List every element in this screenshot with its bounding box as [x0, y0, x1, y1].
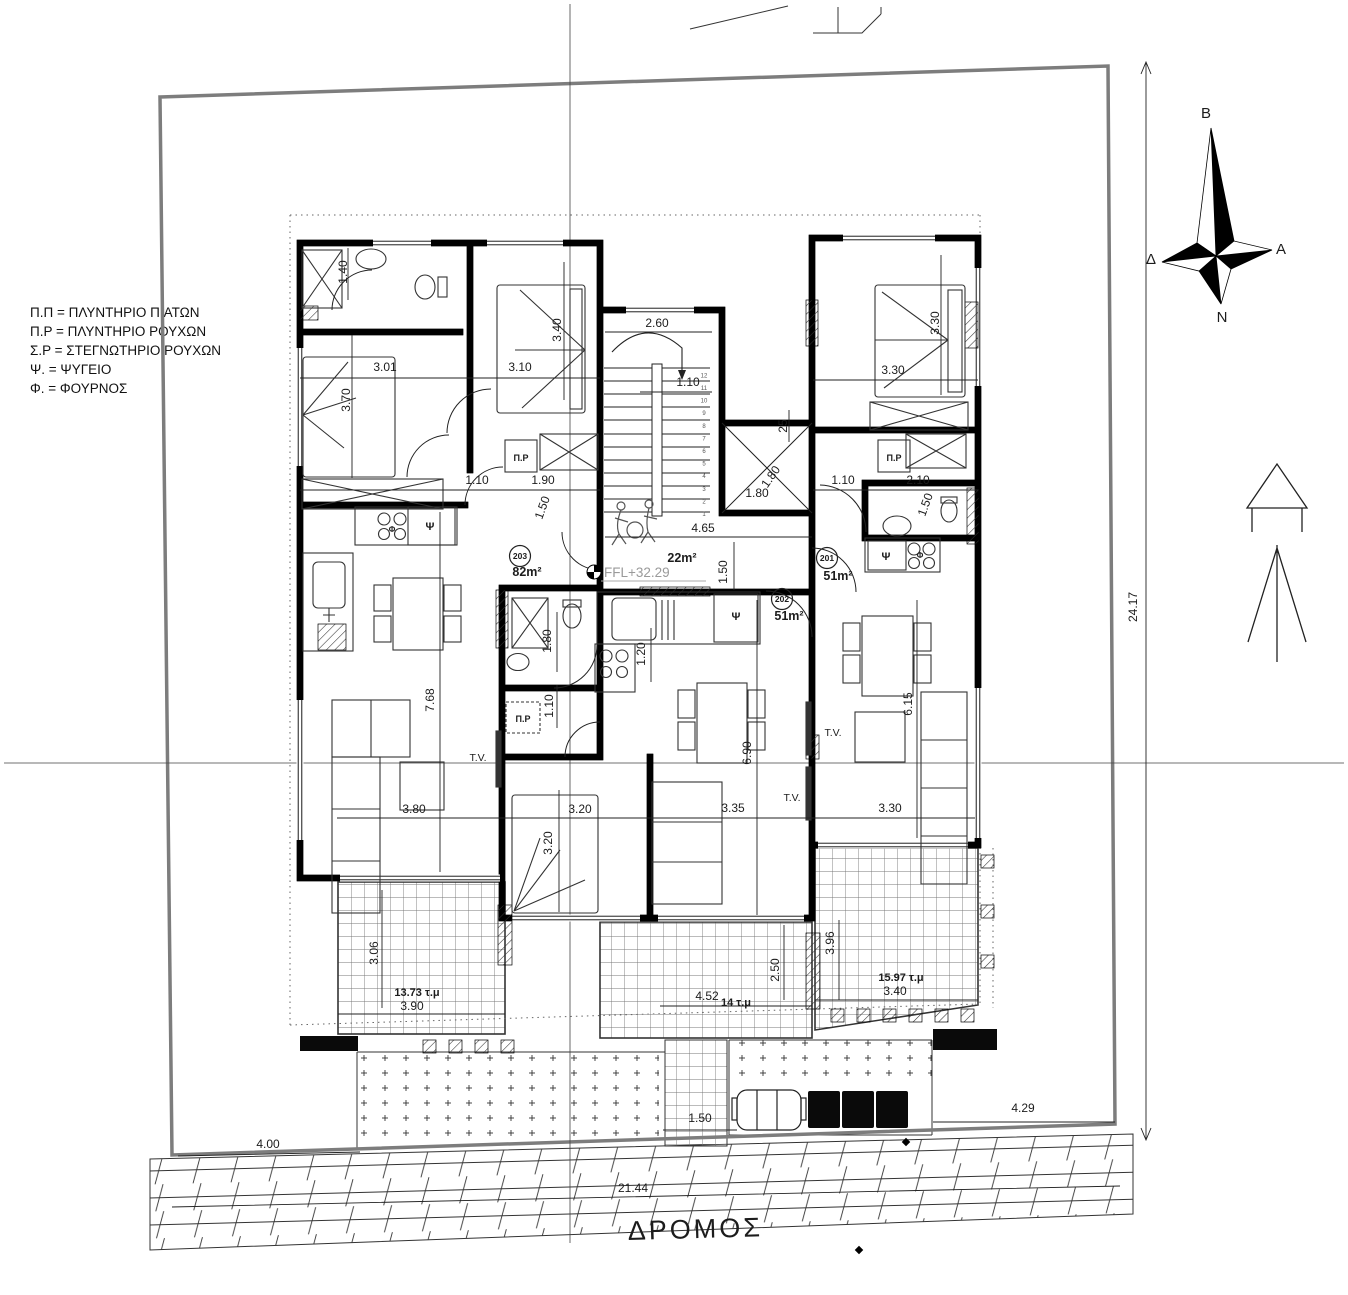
svg-text:203: 203 — [513, 551, 527, 561]
plan-label: 3.96 — [823, 931, 837, 955]
staircase — [604, 333, 710, 516]
stair-step-number: 7 — [702, 436, 706, 442]
dining-table — [843, 616, 931, 696]
plan-label: 3.20 — [541, 831, 555, 855]
plan-label: 1.80 — [540, 629, 554, 653]
window — [373, 240, 431, 247]
plan-label: 3.35 — [721, 801, 745, 815]
compass-south-label: Ν — [1217, 309, 1228, 326]
plan-label: 6.90 — [740, 741, 754, 765]
window — [626, 307, 694, 314]
plan-label: 4.65 — [691, 521, 715, 535]
plan-label: 3.70 — [339, 388, 353, 412]
plan-label: 21.44 — [618, 1181, 648, 1195]
plan-label: 1.50 — [532, 494, 553, 521]
stair-step-number: 12 — [701, 373, 708, 379]
window — [818, 842, 968, 849]
plan-label: 7.68 — [423, 688, 437, 712]
plan-label: 1.90 — [531, 473, 555, 487]
plan-label: 3.06 — [367, 941, 381, 965]
plan-label: 6.15 — [901, 692, 915, 716]
window — [340, 875, 500, 882]
window — [658, 915, 804, 922]
plan-label: 3.30 — [928, 311, 942, 335]
plan-label: 3.80 — [402, 802, 426, 816]
plan-label: T.V. — [824, 727, 841, 739]
plan-label: 4.00 — [256, 1137, 280, 1151]
kitchen — [595, 592, 760, 692]
plan-label: 1.20 — [634, 642, 648, 666]
plan-label: Φ — [389, 525, 396, 534]
stair-step-number: 8 — [702, 424, 706, 430]
stair-step-numbers: 123456789101112 — [701, 373, 708, 518]
plan-label: 3.40 — [883, 984, 907, 998]
site-dimension-line — [1141, 62, 1151, 1140]
plan-label: Ψ — [732, 611, 741, 623]
plan-label: 4.29 — [1011, 1101, 1035, 1115]
plan-label: 25 — [776, 419, 790, 433]
plan-label: 1.50 — [688, 1111, 712, 1125]
window — [512, 915, 640, 922]
plan-label: 3.01 — [373, 360, 397, 374]
plan-label: 2.50 — [768, 958, 782, 982]
plan-label: 1.40 — [336, 260, 350, 284]
dining-table — [374, 578, 461, 650]
plan-label: 13.73 τ.μ — [394, 987, 439, 999]
plan-label: 3.30 — [878, 801, 902, 815]
apartment-number-badge: 203 — [510, 546, 531, 567]
svg-text:202: 202 — [775, 594, 789, 604]
stair-step-number: 3 — [702, 487, 706, 493]
compass-east-label: Α — [1276, 241, 1286, 258]
plan-label: 51m² — [774, 609, 803, 623]
plan-label: 3.10 — [508, 360, 532, 374]
water-tank — [732, 1090, 806, 1130]
plan-label: 1.50 — [915, 491, 936, 518]
plan-label: Ψ — [882, 551, 891, 563]
floor-plan-canvas: 123456789101112 — [0, 0, 1348, 1295]
road-name-label: ΔΡΟΜΟΣ — [627, 1212, 763, 1246]
plan-label: Π.Ρ — [886, 453, 901, 463]
plan-label: 3.90 — [400, 999, 424, 1013]
plan-label: 82m² — [512, 565, 541, 579]
plan-label: 14 τ.μ — [721, 997, 751, 1009]
bed — [303, 357, 395, 477]
plan-label: 1.10 — [676, 375, 700, 389]
compass-west-label: Δ — [1146, 251, 1156, 268]
window — [975, 688, 982, 838]
plan-label: 1.50 — [716, 560, 730, 584]
svg-text:201: 201 — [820, 553, 834, 563]
waste-bins — [808, 1091, 908, 1128]
floor-plan-page: Π.Π = ΠΛΥΝΤΗΡΙΟ ΠΙΑΤΩΝ Π.Ρ = ΠΛΥΝΤΗΡΙΟ Ρ… — [0, 0, 1348, 1295]
plan-label: 1.10 — [542, 694, 556, 718]
plan-label: Φ — [917, 551, 924, 560]
plan-label: Π.Ρ — [513, 453, 528, 463]
entrance-arrow — [1247, 464, 1307, 662]
compass-rose: Β Α Ν Δ — [1146, 105, 1286, 326]
window — [843, 235, 935, 242]
compass-north-label: Β — [1201, 105, 1211, 122]
stair-step-number: 2 — [702, 499, 706, 505]
stair-step-number: 10 — [701, 399, 708, 405]
survey-nail — [855, 1246, 863, 1254]
plan-label: 3.30 — [881, 363, 905, 377]
stair-step-number: 1 — [702, 512, 706, 518]
stair-step-number: 5 — [702, 462, 706, 468]
stair-step-number: 6 — [702, 449, 706, 455]
plan-label: 51m² — [823, 569, 852, 583]
window — [487, 240, 563, 247]
wheelchair-figures — [612, 500, 657, 545]
stair-step-number: 4 — [702, 474, 706, 480]
plan-label: 2.10 — [906, 473, 930, 487]
plan-label: 15.97 τ.μ — [878, 972, 923, 984]
bed — [497, 285, 585, 413]
plan-label: 1.10 — [831, 473, 855, 487]
tv-unit — [496, 702, 811, 820]
plan-label: T.V. — [469, 752, 486, 764]
plan-label: 3.20 — [568, 802, 592, 816]
plan-label: T.V. — [783, 792, 800, 804]
ffl-level-label: FFL+32.29 — [604, 565, 670, 580]
plan-label: 24.17 — [1126, 592, 1140, 622]
stair-step-number: 9 — [702, 411, 706, 417]
plan-label: 1.10 — [465, 473, 489, 487]
sofa — [652, 782, 722, 904]
plan-label: 4.52 — [695, 989, 719, 1003]
window — [297, 700, 304, 840]
kitchen — [865, 538, 940, 572]
plan-label: 2.60 — [645, 316, 669, 330]
plan-label: Π.Ρ — [515, 714, 530, 724]
plan-label: 3.40 — [550, 318, 564, 342]
plan-label: 22m² — [667, 551, 696, 565]
bathroom — [302, 249, 447, 308]
plan-label: Ψ — [426, 521, 435, 533]
curb-lines — [690, 6, 881, 33]
stair-step-number: 11 — [701, 386, 708, 392]
